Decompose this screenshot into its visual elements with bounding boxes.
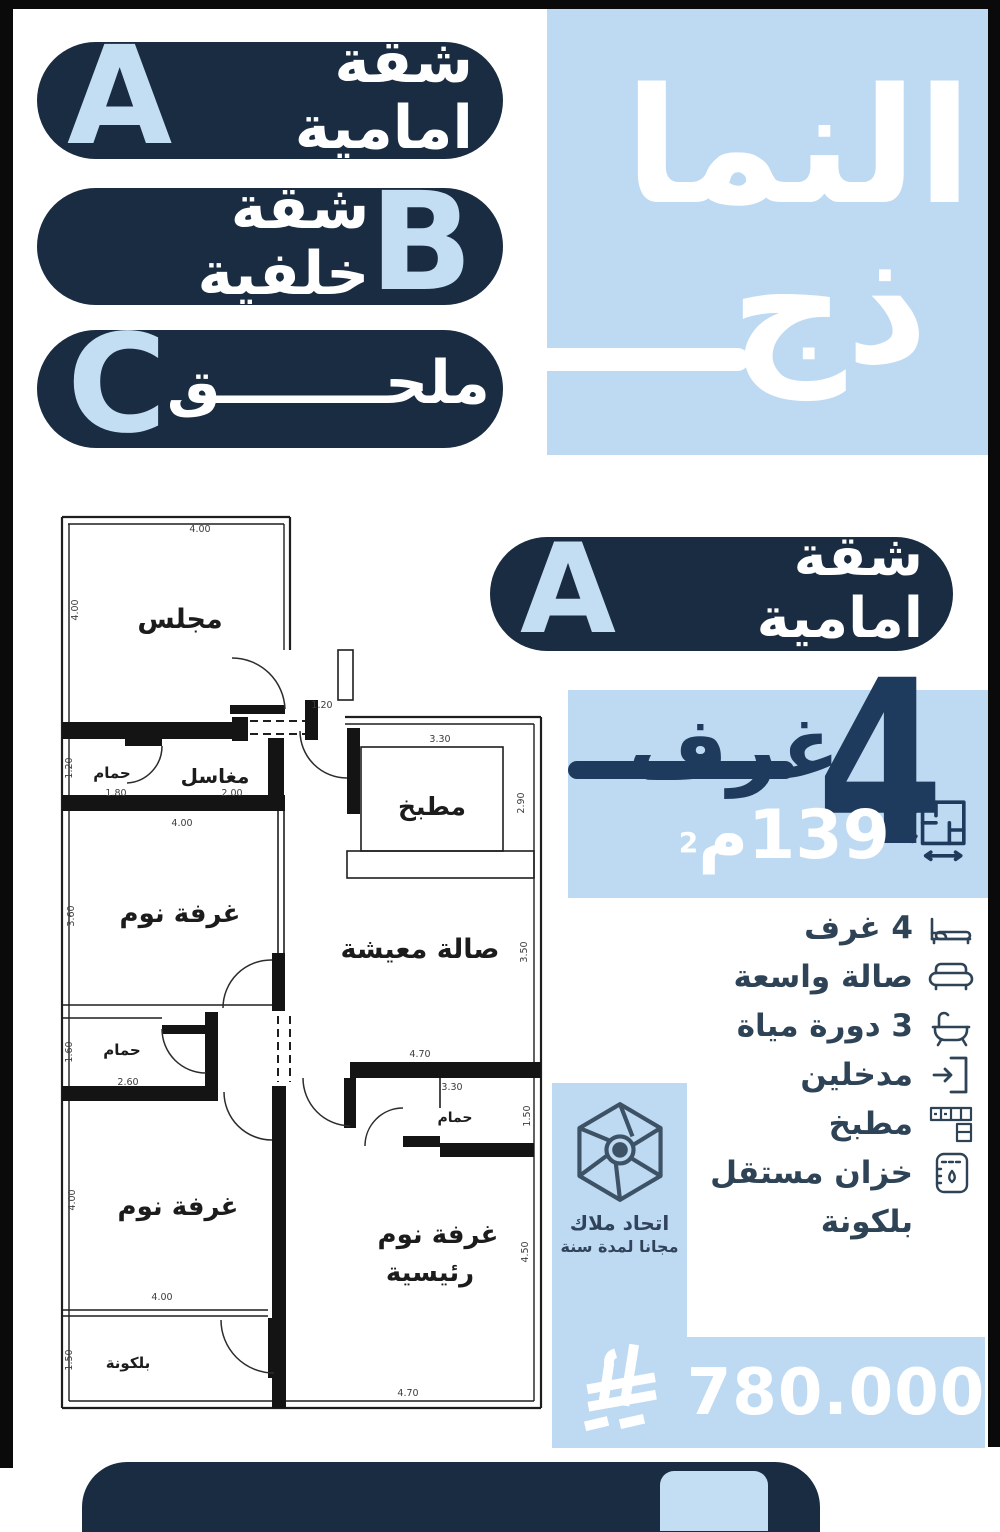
dimension-label: 3.50 <box>519 941 530 962</box>
legend-letter-b: B <box>369 175 473 311</box>
room-label: صالة معيشة <box>341 934 500 965</box>
dimension-label: 1.20 <box>311 700 332 711</box>
legend-letter-c: C <box>67 317 167 453</box>
room-label: غرفة نوم <box>118 1192 239 1222</box>
dimension-label: 1.80 <box>105 788 126 799</box>
dimension-label: 1.50 <box>522 1105 533 1126</box>
unit-badge-letter: A <box>520 528 616 652</box>
feature-label: مطبخ <box>829 1106 913 1142</box>
feature-label: صالة واسعة <box>733 959 913 995</box>
feature-row-hall: صالة واسعة <box>535 952 975 1001</box>
dimension-label: 1.50 <box>64 1349 75 1370</box>
rooms-calligraphy-tail <box>568 761 794 779</box>
room-label: مغاسل <box>181 764 250 788</box>
dimension-label: 4.50 <box>520 1241 531 1262</box>
area-exponent: 2 <box>679 826 698 859</box>
bathtub-icon <box>927 1002 975 1050</box>
dimension-label: 4.00 <box>189 524 210 535</box>
price-bar: 780.000 <box>687 1337 985 1448</box>
floor-plan: مجلسحماممغاسلمطبخغرفة نومصالة معيشةحمامح… <box>55 510 547 1412</box>
title-calligraphy-tail <box>547 348 749 371</box>
saudi-riyal-symbol <box>570 1338 670 1438</box>
poster-page: { "colors": { "navy": "#1a2c42", "light_… <box>0 0 1000 1488</box>
legend-label-c: ملحــــــــق <box>167 350 490 416</box>
owners-union-name: اتحاد ملاك <box>570 1211 669 1235</box>
legend-pill-a: A شقة امامية <box>37 42 503 159</box>
dimension-label: 2.90 <box>516 792 527 813</box>
entrance-icon <box>927 1051 975 1099</box>
footer-letter-b-partial <box>660 1471 768 1531</box>
unit-stats-box: 4 غرف 139م2 <box>568 690 988 898</box>
dimension-label: 3.30 <box>429 734 450 745</box>
bed-icon <box>927 904 975 952</box>
area-measure-icon <box>904 796 970 864</box>
room-label: غرفة نوم <box>120 899 241 929</box>
area-value: 139م2 <box>679 802 890 870</box>
dimension-label: 4.70 <box>397 1388 418 1399</box>
footer-pill-b <box>82 1462 820 1532</box>
frame-bar-left <box>0 0 13 1468</box>
dimension-label: 4.00 <box>151 1292 172 1303</box>
room-label: مطبخ <box>398 792 466 822</box>
floor-plan-labels: مجلسحماممغاسلمطبخغرفة نومصالة معيشةحمامح… <box>64 524 533 1399</box>
room-label: غرفة نوم <box>378 1220 499 1250</box>
dimension-label: 4.70 <box>409 1049 430 1060</box>
owners-union-logo-block: اتحاد ملاك مجانا لمدة سنة <box>552 1083 687 1448</box>
legend-pill-c: C ملحــــــــق <box>37 330 503 448</box>
feature-label: 3 دورة مياة <box>737 1008 913 1044</box>
feature-label: مدخلين <box>800 1057 913 1093</box>
feature-row-bathrooms: 3 دورة مياة <box>535 1001 975 1050</box>
dimension-label: 4.00 <box>67 1189 78 1210</box>
dimension-label: 4.00 <box>171 818 192 829</box>
feature-label: 4 غرف <box>804 910 913 946</box>
feature-label: خزان مستقل <box>710 1155 913 1191</box>
legend-label-a: شقة امامية <box>172 29 473 161</box>
dimension-label: 2.00 <box>221 788 242 799</box>
models-title-line1: النما <box>624 67 972 227</box>
room-label: حمام <box>438 1110 473 1126</box>
owners-union-offer: مجانا لمدة سنة <box>561 1237 679 1256</box>
room-label: حمام <box>93 764 131 782</box>
frame-bar-top <box>0 0 1000 9</box>
area-number: 139 <box>748 796 890 875</box>
rooms-word: غرف <box>628 706 840 792</box>
price-amount: 780.000 <box>687 1356 986 1430</box>
dimension-label: 4.00 <box>70 599 81 620</box>
dimension-label: 3.30 <box>441 1082 462 1093</box>
legend-label-b: شقة خلفية <box>67 175 369 307</box>
models-title-block: النما ذج <box>547 9 988 455</box>
models-title-line2: ذج <box>731 227 928 387</box>
owners-union-logo-icon <box>568 1097 672 1207</box>
room-label: مجلس <box>137 604 222 635</box>
feature-label: بلكونة <box>821 1204 913 1240</box>
frame-bar-right <box>988 0 1000 1447</box>
kitchen-icon <box>927 1100 975 1148</box>
dimension-label: 1.60 <box>64 1041 75 1062</box>
dimension-label: 1.20 <box>64 757 75 778</box>
legend-pill-b: B شقة خلفية <box>37 188 503 305</box>
dimension-label: 3.60 <box>66 905 77 926</box>
tank-icon <box>927 1149 975 1197</box>
feature-icon-placeholder <box>927 1198 975 1246</box>
room-label: رئيسية <box>386 1258 474 1288</box>
room-label: حمام <box>103 1041 141 1059</box>
area-unit: م <box>698 796 748 875</box>
feature-row-rooms: 4 غرف <box>535 903 975 952</box>
room-label: بلكونة <box>106 1354 151 1372</box>
sofa-icon <box>927 953 975 1001</box>
legend-letter-a: A <box>67 29 172 165</box>
dimension-label: 2.60 <box>117 1077 138 1088</box>
